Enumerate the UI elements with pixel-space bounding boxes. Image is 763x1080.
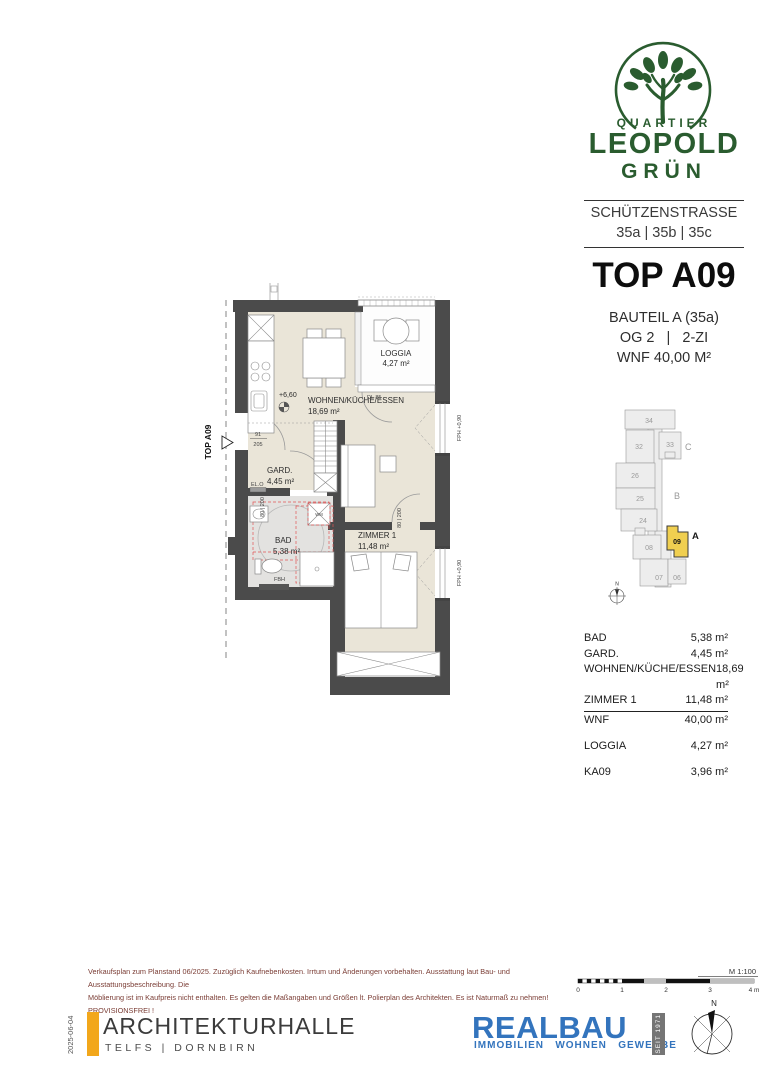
row-label: WNF: [584, 713, 609, 729]
row-label: WOHNEN/KÜCHE/ESSEN: [584, 662, 716, 693]
logo-text-leopold: LEOPOLD: [584, 128, 744, 161]
siteplan-unit: 25: [636, 496, 644, 503]
siteplan-unit: 24: [639, 518, 647, 525]
row-value: 3,96 m²: [691, 765, 728, 781]
scale-tick: 3: [708, 987, 712, 994]
siteplan-section-c: C: [685, 442, 692, 452]
row-label: ZIMMER 1: [584, 693, 637, 709]
siteplan-unit: 33: [666, 442, 674, 449]
row-value: 4,27 m²: [691, 739, 728, 755]
floorplan-svg: +6,60 WOHNEN/KÜCHE/ESSEN 18,69 m² LOGGIA…: [195, 275, 480, 715]
row-value: 40,00 m²: [685, 713, 728, 729]
siteplan-unit: 07: [655, 575, 663, 582]
entrance-label: TOP A09: [203, 424, 213, 459]
room-label-loggia: LOGGIA: [381, 349, 412, 358]
room-area-zimmer: 11,48 m²: [358, 542, 389, 551]
disclaimer-line-1: Verkaufsplan zum Planstand 06/2025. Zuzü…: [88, 965, 558, 991]
entrance-arrow-icon: [222, 436, 233, 449]
siteplan-unit: 06: [673, 575, 681, 582]
entrance-door-width: 91: [255, 432, 261, 438]
unit-title: TOP A09: [584, 256, 744, 296]
architect-accent-bar: [87, 1012, 99, 1056]
plan-date: 2025-06-04: [66, 1012, 75, 1058]
row-label: GARD.: [584, 647, 619, 663]
fph-label-bottom: FPH +0,90: [457, 560, 463, 586]
unit-bauteil: BAUTEIL A (35a): [584, 310, 744, 326]
address-numbers: 35a | 35b | 35c: [584, 225, 744, 241]
scale-tick: 1: [620, 987, 624, 994]
table-row: ZIMMER 1 11,48 m²: [584, 693, 728, 709]
architect-locations: TELFS | DORNBIRN: [105, 1042, 258, 1054]
realbau-since-badge: SEIT 1971: [652, 1013, 665, 1055]
level-label: +6,60: [279, 392, 297, 399]
compass: N: [684, 996, 744, 1070]
siteplan-unit: 26: [631, 473, 639, 480]
table-row: GARD. 4,45 m²: [584, 647, 728, 663]
siteplan-unit-highlighted: 09: [673, 539, 681, 546]
table-divider: [584, 711, 728, 712]
room-area-gard: 4,45 m²: [267, 477, 294, 486]
room-area-loggia: 4,27 m²: [382, 359, 409, 368]
scale-label: M 1:100: [729, 967, 756, 976]
table-row: BAD 5,38 m²: [584, 631, 728, 647]
address-rule-bottom: [584, 247, 744, 248]
table-row-total: WNF 40,00 m²: [584, 713, 728, 729]
area-table: BAD 5,38 m² GARD. 4,45 m² WOHNEN/KÜCHE/E…: [584, 631, 728, 780]
scale-tick: 0: [576, 987, 580, 994]
logo-text-gruen: GRÜN: [584, 160, 744, 184]
siteplan-section-b: B: [674, 491, 680, 501]
verkaufsplan-page: QUARTIER LEOPOLD GRÜN SCHÜTZENSTRASSE 35…: [0, 0, 763, 1080]
room-label-wohnen: WOHNEN/KÜCHE/ESSEN: [308, 396, 404, 405]
room-label-zimmer: ZIMMER 1: [358, 531, 397, 540]
row-value: 18,69 m²: [716, 662, 744, 693]
entrance-door-height: 205: [253, 442, 262, 448]
address-rule-top: [584, 200, 744, 201]
row-value: 4,45 m²: [691, 647, 728, 663]
wm-label: WM: [315, 512, 323, 517]
row-label: KA09: [584, 765, 611, 781]
compass-north-label: N: [711, 999, 717, 1008]
siteplan-north-label: N: [615, 582, 619, 588]
loggia-door-label: DL 85: [367, 395, 381, 401]
siteplan-section-a: A: [692, 531, 699, 542]
siteplan-unit: 32: [635, 444, 643, 451]
elo-label: EL.O: [251, 482, 264, 488]
compass-needle-icon: [708, 1010, 715, 1034]
unit-wnf: WNF 40,00 M²: [584, 350, 744, 366]
row-value: 5,38 m²: [691, 631, 728, 647]
scale-tick: 2: [664, 987, 668, 994]
table-row-loggia: LOGGIA 4,27 m²: [584, 739, 728, 755]
row-label: LOGGIA: [584, 739, 626, 755]
scale-bar: M 1:100 0 1 2 3 4 m: [570, 966, 762, 996]
table-row: WOHNEN/KÜCHE/ESSEN 18,69 m²: [584, 662, 728, 693]
scale-tick: 4 m: [749, 987, 760, 994]
room-area-bad: 5,38 m²: [273, 547, 300, 556]
fph-label-top: FPH +0,90: [457, 415, 463, 441]
realbau-tagline: IMMOBILIEN WOHNEN GEWERBE: [474, 1040, 677, 1051]
room-label-gard: GARD.: [267, 466, 292, 475]
room-area-wohnen: 18,69 m²: [308, 407, 340, 416]
row-value: 11,48 m²: [685, 693, 728, 709]
bad-door-dim: 80 | 200: [260, 497, 266, 517]
table-row-ka: KA09 3,96 m²: [584, 765, 728, 781]
siteplan-unit: 08: [645, 545, 653, 552]
realbau-since-text: SEIT 1971: [655, 1014, 662, 1054]
siteplan-unit: 34: [645, 418, 653, 425]
unit-floor-rooms: OG 2 | 2-ZI: [584, 330, 744, 346]
fbh-label: FBH: [274, 577, 285, 583]
zimmer-door-dim: 80 | 200: [397, 508, 403, 528]
address-street: SCHÜTZENSTRASSE: [584, 205, 744, 221]
row-label: BAD: [584, 631, 607, 647]
room-label-bad: BAD: [275, 536, 292, 545]
siteplan-svg: 34 33 32 26 25 24 08 09 07 06 C B A N: [595, 400, 763, 610]
architect-name: ARCHITEKTURHALLE: [103, 1013, 355, 1040]
